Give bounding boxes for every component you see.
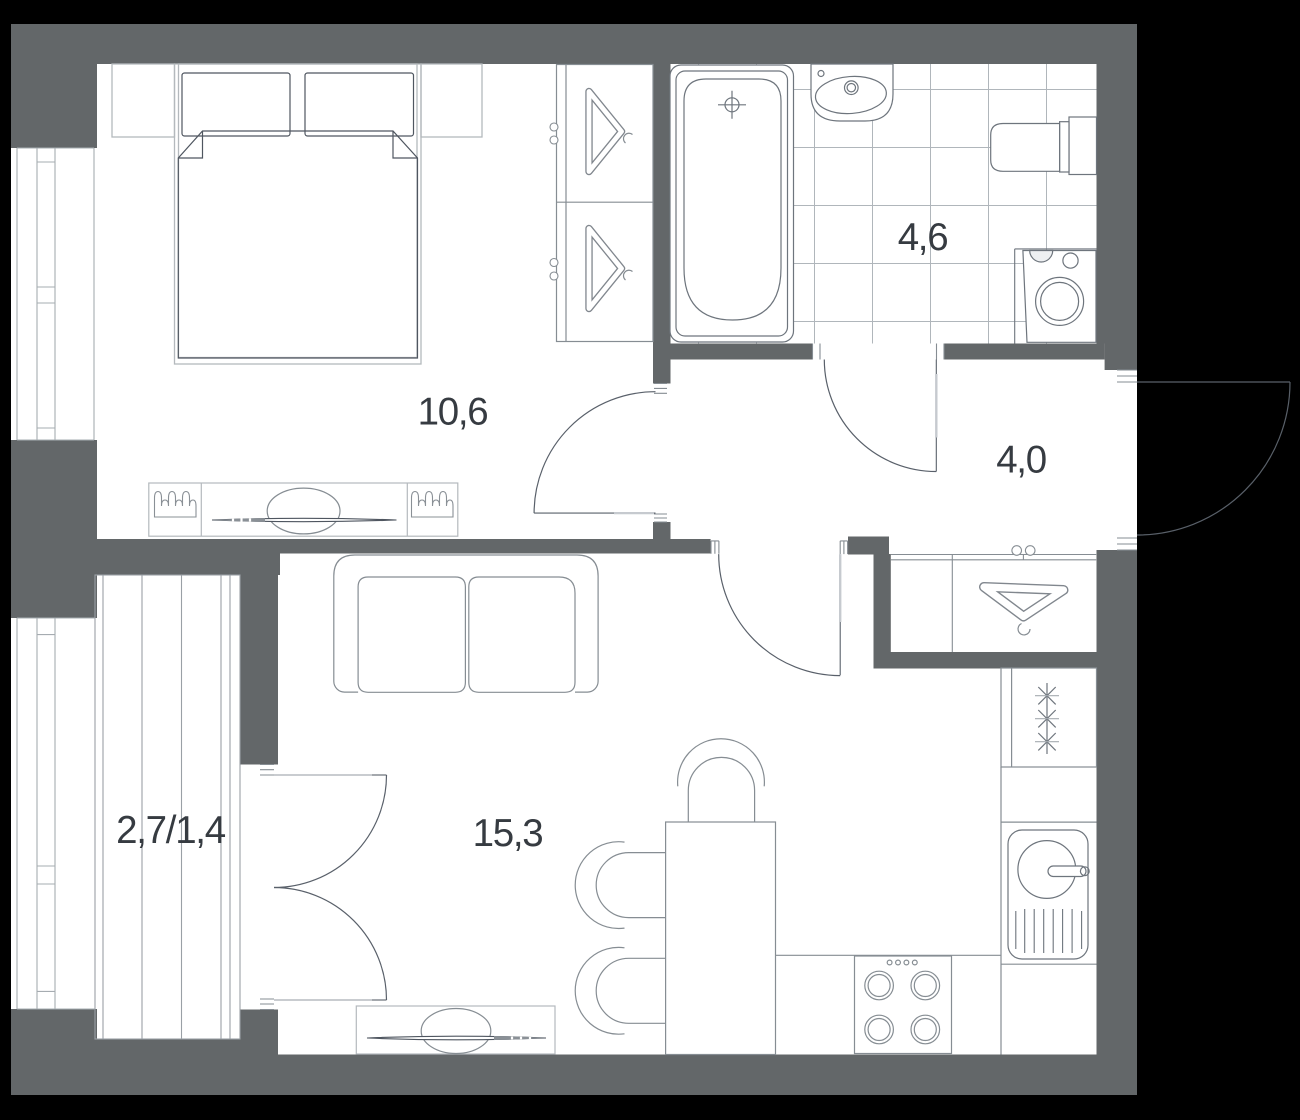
svg-text:10,6: 10,6	[418, 391, 488, 434]
svg-text:4,0: 4,0	[996, 439, 1046, 482]
svg-text:4,6: 4,6	[898, 216, 948, 259]
svg-text:15,3: 15,3	[473, 812, 543, 855]
svg-text:2,7/1,4: 2,7/1,4	[116, 809, 226, 852]
